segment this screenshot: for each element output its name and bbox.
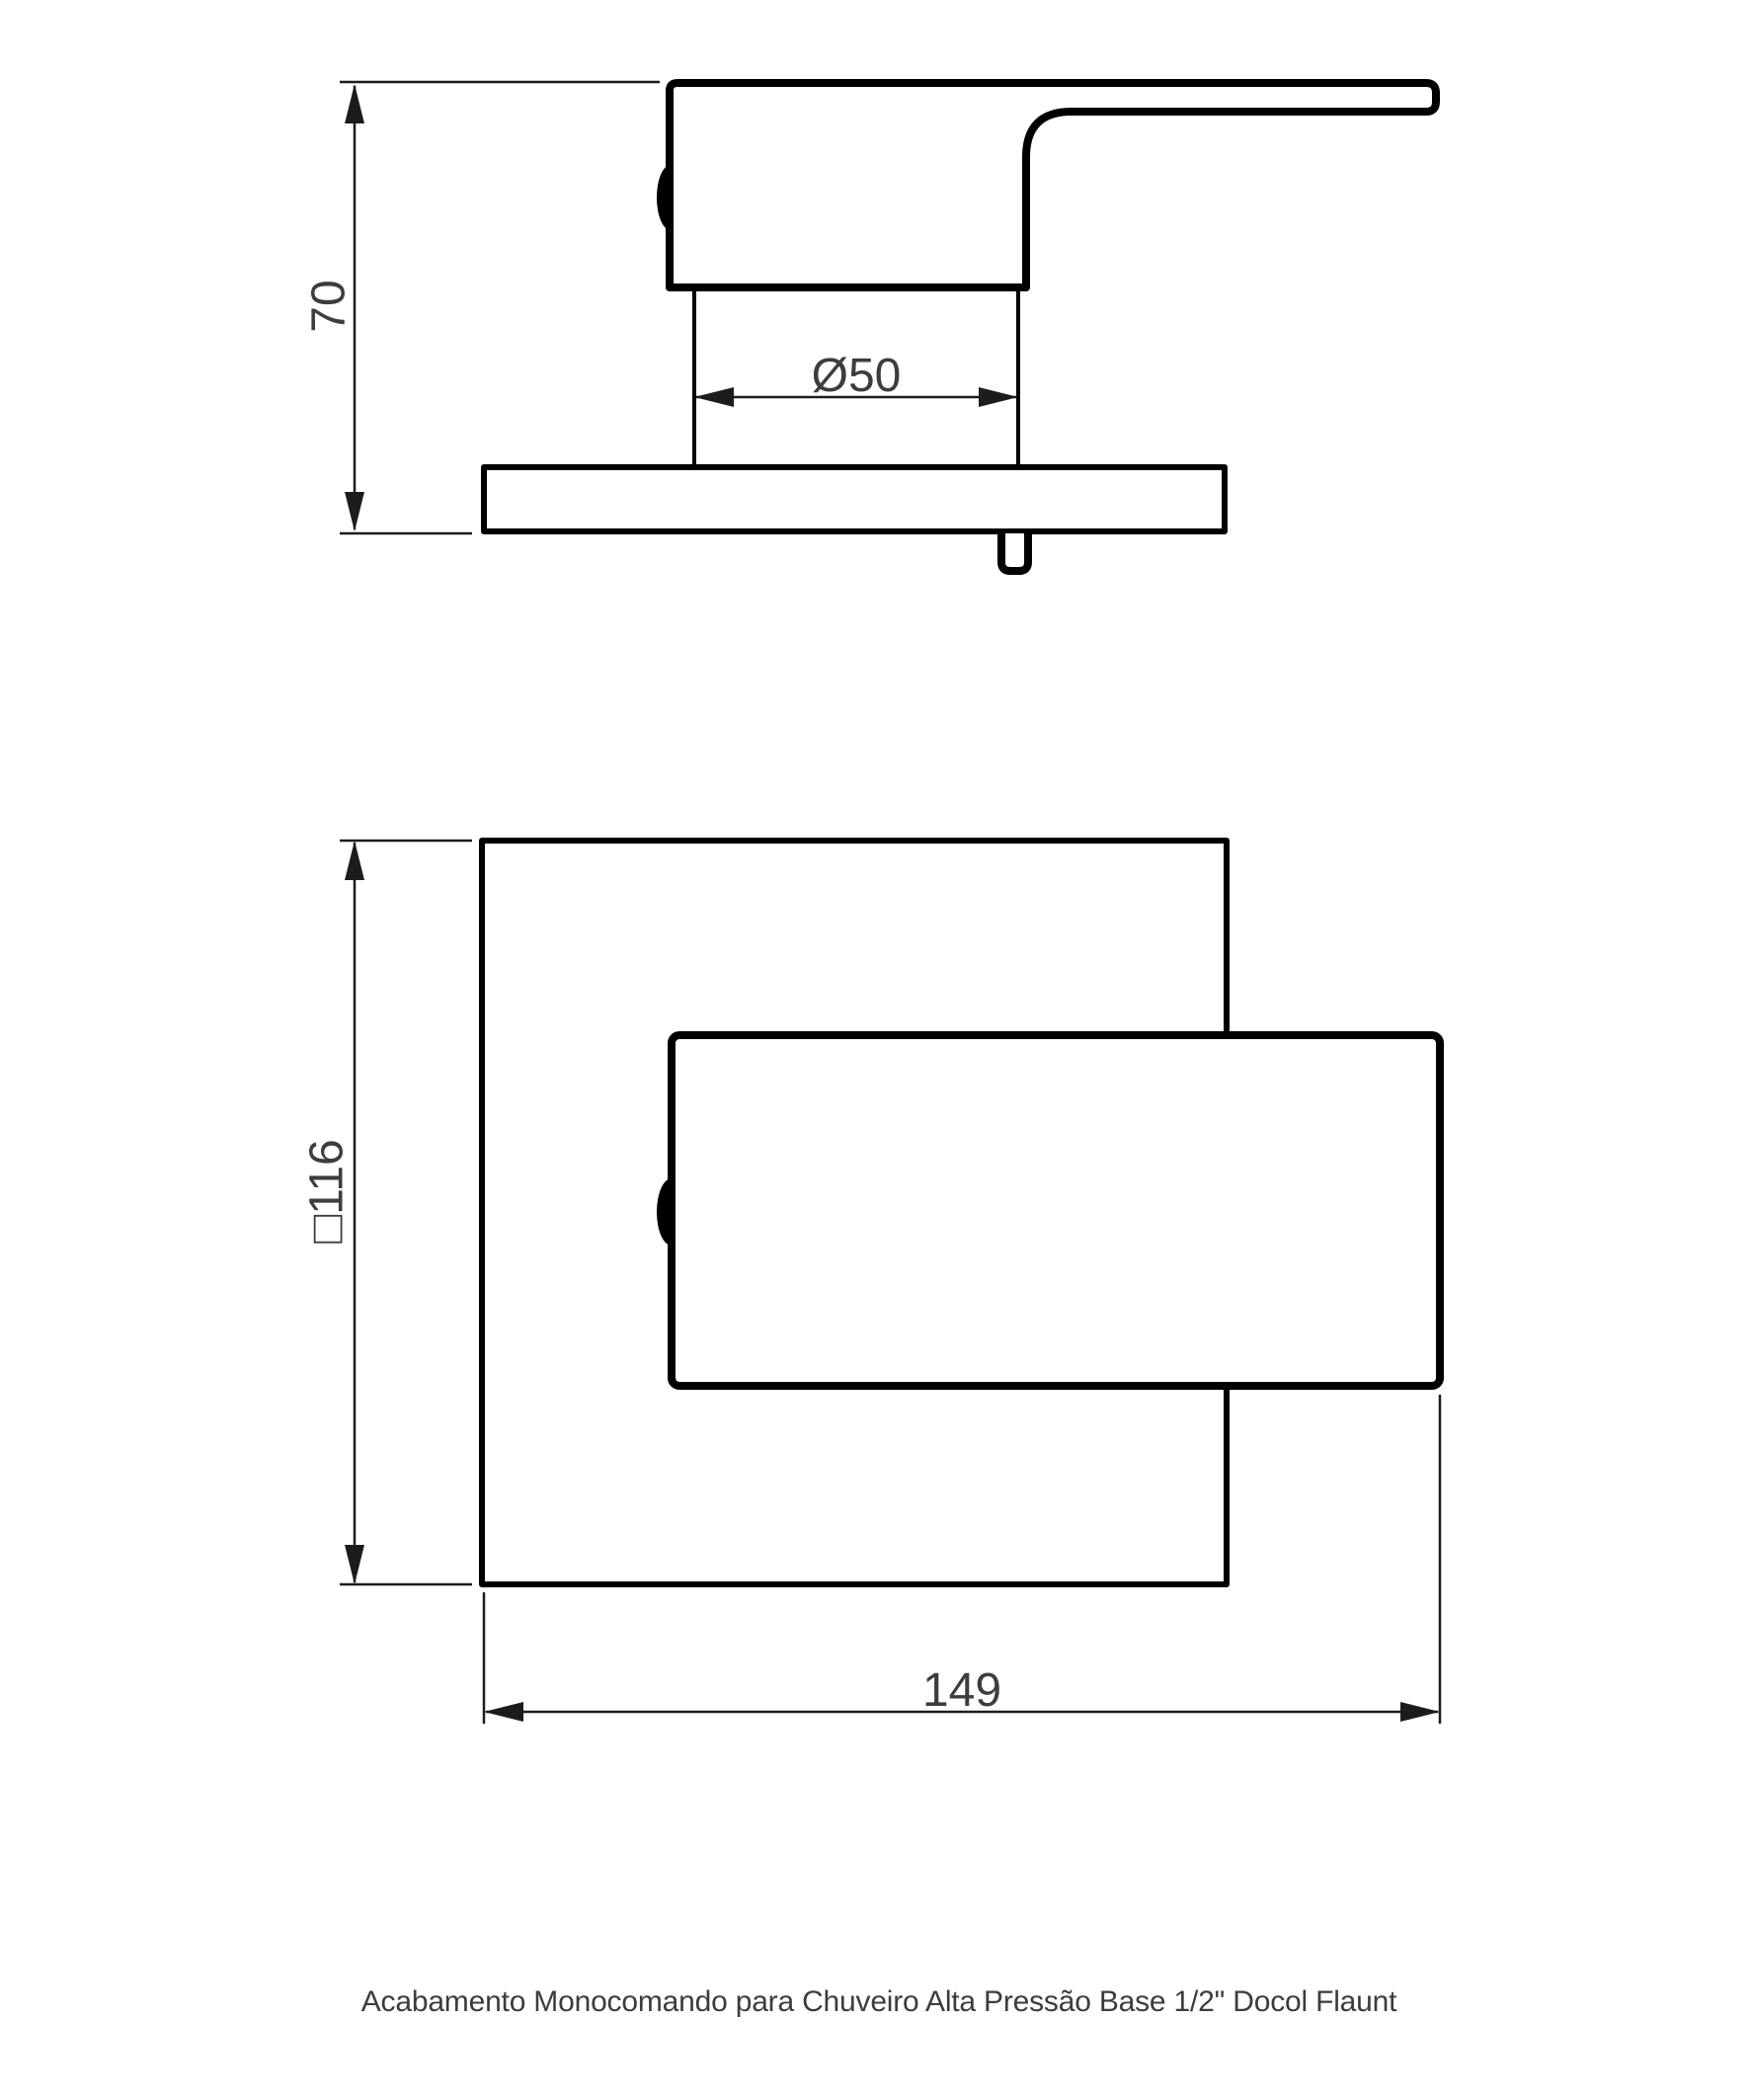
side-wall-plate — [484, 467, 1225, 531]
dim-width-label: 149 — [922, 1664, 1001, 1717]
dim-diameter-50: Ø50 — [694, 350, 1018, 407]
page: { "page": { "background_color": "#ffffff… — [0, 0, 1750, 2100]
dim-plate-arrow-up — [345, 841, 364, 880]
dim-diameter-arrow-left — [694, 387, 734, 407]
front-view: □116 149 — [301, 841, 1440, 1724]
product-caption: Acabamento Monocomando para Chuveiro Alt… — [361, 1985, 1397, 2018]
side-pin-nub — [1001, 533, 1028, 571]
front-handle — [672, 1035, 1440, 1386]
dim-plate-label: □116 — [301, 1139, 354, 1244]
side-body-lever-outline — [670, 83, 1436, 287]
dim-plate-arrow-down — [345, 1545, 364, 1584]
technical-drawing: 70 Ø50 □116 — [0, 0, 1750, 2100]
side-setscrew-bump — [657, 165, 671, 230]
dim-diameter-label: Ø50 — [812, 350, 902, 402]
dim-width-arrow-right — [1400, 1702, 1440, 1722]
dim-height-label: 70 — [303, 280, 356, 332]
side-view: 70 Ø50 — [303, 82, 1436, 571]
dim-width-arrow-left — [484, 1702, 523, 1722]
dim-height-arrow-up — [345, 84, 364, 123]
dim-diameter-arrow-right — [979, 387, 1018, 407]
dim-height-arrow-down — [345, 492, 364, 531]
dim-plate-116: □116 — [301, 841, 472, 1584]
